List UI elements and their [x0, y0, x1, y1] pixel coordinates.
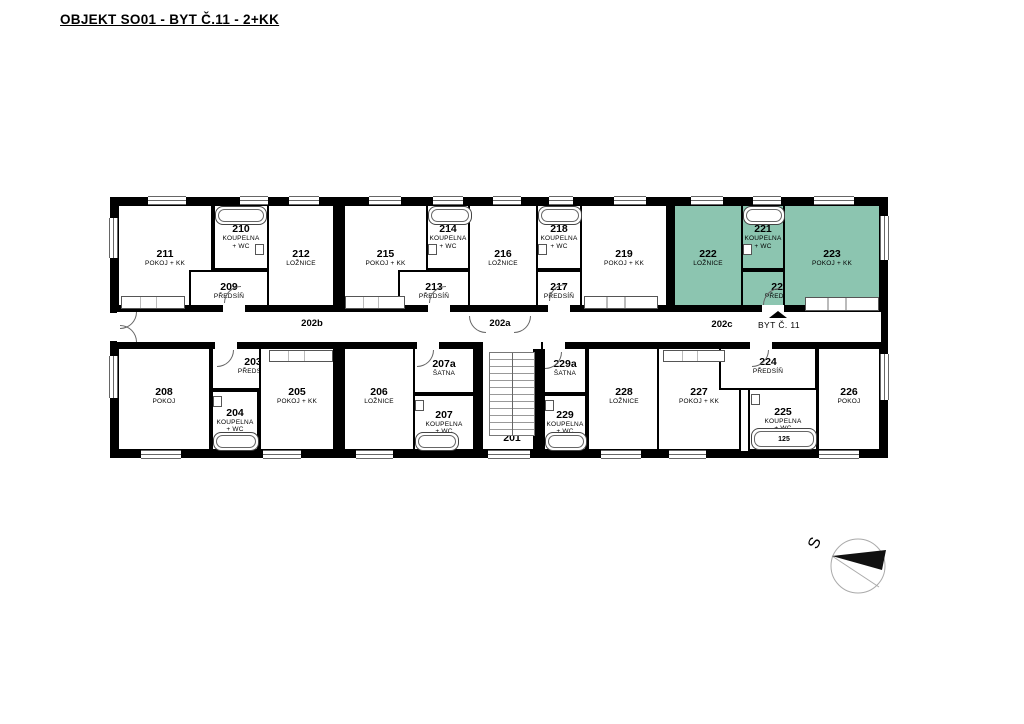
window-icon	[814, 196, 854, 205]
room-216: 216LOŽNICE	[468, 204, 538, 312]
bathtub-icon: 125	[751, 428, 817, 450]
door-opening	[223, 305, 245, 312]
window-icon	[880, 354, 889, 400]
room-label: LOŽNICE	[609, 398, 639, 405]
room-label: POKOJ	[837, 398, 860, 405]
wc-fixture-icon	[538, 244, 547, 255]
door-swing-icon	[120, 325, 137, 342]
bathtub-icon	[415, 432, 459, 451]
bathtub-icon	[215, 206, 267, 225]
room-212: 212LOŽNICE	[267, 204, 335, 312]
kitchen-counter-icon	[121, 296, 185, 309]
bathtub-icon	[545, 432, 587, 451]
corridor-label-202a: 202a	[469, 315, 531, 331]
room-number: 205	[288, 387, 306, 398]
room-label: LOŽNICE	[364, 398, 394, 405]
bathtub-dimension-label: 125	[778, 436, 790, 443]
bathtub-icon	[538, 206, 582, 225]
room-number: 219	[615, 249, 633, 260]
window-icon	[141, 450, 181, 459]
wall-segment	[333, 204, 343, 312]
room-label: POKOJ + KK	[277, 398, 317, 405]
page-title: OBJEKT SO01 - BYT Č.11 - 2+KK	[60, 12, 279, 27]
room-number: 211	[157, 249, 174, 260]
room-number: 204	[226, 408, 244, 419]
wall-segment	[473, 342, 483, 451]
room-226: 226POKOJ	[817, 342, 881, 451]
door-opening	[750, 342, 772, 349]
wall-segment	[666, 204, 675, 312]
compass-icon: S	[798, 514, 902, 610]
window-icon	[263, 450, 301, 459]
room-208: 208POKOJ	[117, 342, 211, 451]
window-icon	[109, 356, 118, 398]
kitchen-counter-icon	[805, 297, 879, 311]
window-icon	[669, 450, 706, 459]
room-number: 226	[840, 387, 858, 398]
room-label: LOŽNICE	[488, 260, 518, 267]
corridor-label-202b: 202b	[267, 315, 357, 331]
room-206: 206LOŽNICE	[343, 342, 415, 451]
window-icon	[601, 450, 641, 459]
kitchen-counter-icon	[269, 350, 333, 362]
room-label: LOŽNICE	[693, 260, 723, 267]
floor-plan: 211POKOJ + KK210KOUPELNA + WC209PŘEDSÍŇ2…	[110, 197, 888, 458]
wc-fixture-icon	[428, 244, 437, 255]
room-number: 221	[754, 224, 772, 235]
room-number: 207	[435, 410, 453, 421]
wc-fixture-icon	[415, 400, 424, 411]
window-icon	[753, 196, 781, 205]
bathtub-icon	[428, 206, 472, 225]
room-222: 222LOŽNICE	[673, 204, 743, 312]
room-number: 210	[232, 224, 250, 235]
room-number: 212	[292, 249, 310, 260]
room-label: POKOJ + KK	[145, 260, 185, 267]
floor-plan-page: { "title": "OBJEKT SO01 - BYT Č.11 - 2+K…	[0, 0, 1024, 724]
room-number: 218	[550, 224, 568, 235]
window-icon	[148, 196, 186, 205]
kitchen-counter-icon	[663, 350, 725, 362]
window-icon	[549, 196, 573, 205]
room-label: POKOJ	[152, 398, 175, 405]
room-number: 223	[823, 249, 841, 260]
wc-fixture-icon	[255, 244, 264, 255]
wc-fixture-icon	[545, 400, 554, 411]
room-228: 228LOŽNICE	[587, 342, 661, 451]
kitchen-counter-icon	[345, 296, 405, 309]
door-opening	[215, 342, 237, 349]
room-label: ŠATNA	[554, 370, 576, 377]
room-label: LOŽNICE	[286, 260, 316, 267]
bathtub-icon	[213, 432, 259, 451]
room-number: 225	[774, 407, 792, 418]
apartment-callout-label: BYT Č. 11	[734, 320, 824, 332]
window-icon	[488, 450, 530, 459]
window-icon	[369, 196, 401, 205]
door-opening	[543, 342, 565, 349]
wall-segment	[333, 342, 343, 451]
room-number: 206	[370, 387, 388, 398]
wc-fixture-icon	[743, 244, 752, 255]
window-icon	[691, 196, 723, 205]
door-opening	[548, 305, 570, 312]
window-icon	[240, 196, 268, 205]
window-icon	[880, 216, 889, 260]
room-label: POKOJ + KK	[679, 398, 719, 405]
room-label: ŠATNA	[433, 370, 455, 377]
window-icon	[493, 196, 521, 205]
room-label: POKOJ + KK	[604, 260, 644, 267]
wc-fixture-icon	[751, 394, 760, 405]
room-number: 228	[615, 387, 633, 398]
window-icon	[433, 196, 463, 205]
window-icon	[289, 196, 319, 205]
window-icon	[109, 218, 118, 258]
wc-fixture-icon	[213, 396, 222, 407]
door-opening	[428, 305, 450, 312]
window-icon	[356, 450, 393, 459]
bathtub-icon	[743, 206, 785, 225]
entrance-opening	[110, 313, 118, 341]
window-icon	[614, 196, 646, 205]
compass-needle-icon	[832, 550, 886, 570]
room-number: 216	[494, 249, 512, 260]
room-number: 208	[155, 387, 173, 398]
room-number: 222	[699, 249, 717, 260]
compass-north-label: S	[805, 535, 825, 552]
staircase-icon	[489, 352, 535, 436]
apartment-arrow-icon	[769, 311, 787, 318]
window-icon	[819, 450, 859, 459]
room-label: KOUPELNA + WC	[222, 235, 259, 250]
door-opening	[483, 342, 541, 349]
room-label: PŘEDSÍŇ	[753, 368, 783, 375]
room-label: POKOJ + KK	[365, 260, 405, 267]
room-223: 223POKOJ + KK	[783, 204, 881, 312]
door-opening	[417, 342, 439, 349]
kitchen-counter-icon	[584, 296, 658, 309]
room-number: 207a	[432, 359, 455, 370]
room-number: 215	[377, 249, 395, 260]
room-number: 214	[439, 224, 457, 235]
room-number: 227	[690, 387, 708, 398]
room-label: POKOJ + KK	[812, 260, 852, 267]
room-number: 229	[556, 410, 574, 421]
